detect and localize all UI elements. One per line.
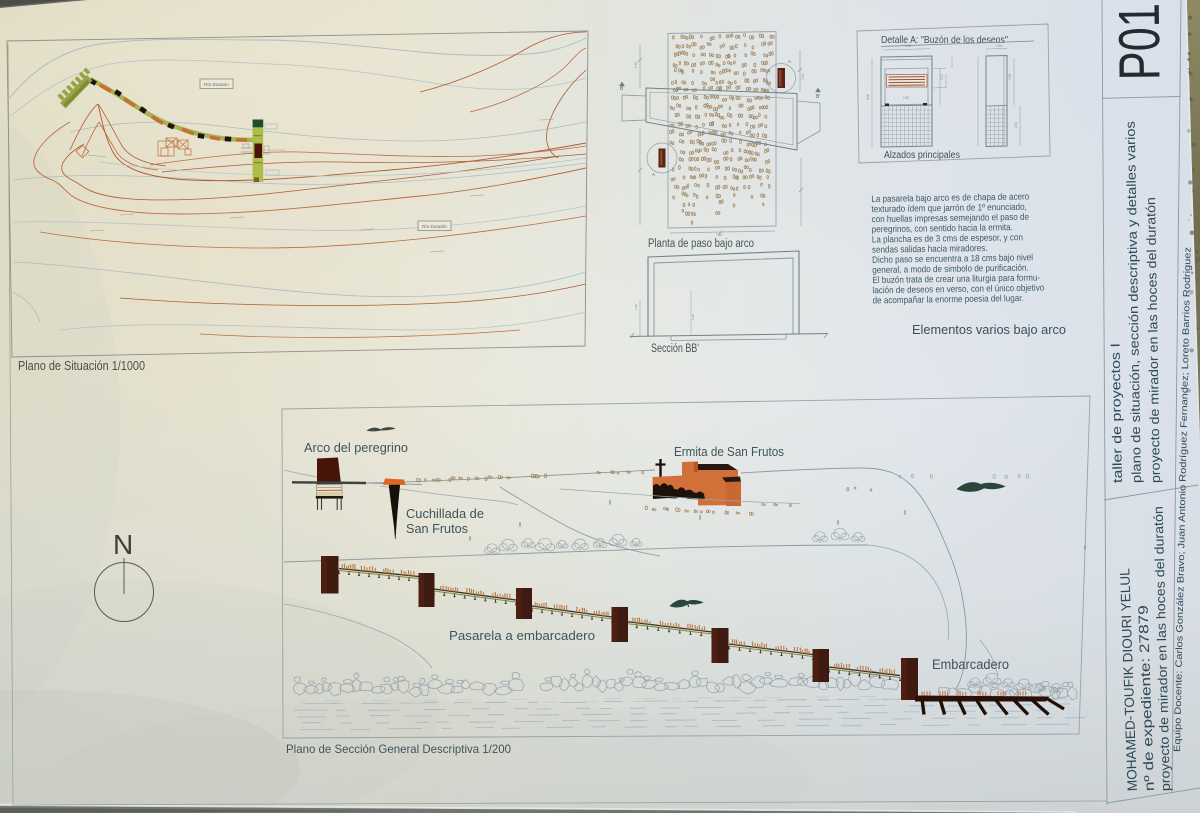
svg-text:N: N (113, 529, 133, 560)
svg-text:Plano de Situación 1/1000: Plano de Situación 1/1000 (18, 359, 145, 373)
svg-text:2.17: 2.17 (940, 74, 944, 80)
svg-text:3.36: 3.36 (905, 44, 911, 48)
svg-text:1.95: 1.95 (634, 304, 638, 310)
svg-text:Planta de paso bajo arco: Planta de paso bajo arco (648, 238, 754, 250)
svg-text:1.50: 1.50 (996, 44, 1002, 48)
svg-text:Embarcadero: Embarcadero (932, 657, 1009, 672)
svg-text:Río Duratón: Río Duratón (204, 82, 229, 87)
svg-text:0.18: 0.18 (691, 314, 695, 320)
svg-text:A: A (788, 59, 791, 64)
svg-text:Pasarela a embarcadero: Pasarela a embarcadero (449, 628, 595, 643)
svg-text:7.04: 7.04 (801, 74, 805, 80)
svg-text:Río Duratón: Río Duratón (422, 224, 447, 229)
svg-text:2.80: 2.80 (903, 96, 910, 100)
svg-text:6.00: 6.00 (866, 94, 870, 100)
svg-text:Sección BB': Sección BB' (651, 343, 699, 355)
svg-text:taller de proyectos I: taller de proyectos I (1108, 343, 1125, 483)
svg-text:2.44: 2.44 (1014, 122, 1018, 128)
svg-text:Plano de Sección General Descr: Plano de Sección General Descriptiva 1/2… (286, 742, 511, 756)
svg-text:A: A (652, 172, 655, 177)
svg-text:B': B' (816, 94, 820, 100)
svg-text:P01: P01 (1107, 3, 1173, 81)
svg-text:7.20: 7.20 (716, 233, 722, 237)
svg-text:San Frutos: San Frutos (406, 522, 468, 536)
svg-text:Ermita de San Frutos: Ermita de San Frutos (674, 445, 784, 459)
svg-text:Arco del peregrino: Arco del peregrino (304, 441, 408, 455)
svg-text:Cuchillada de: Cuchillada de (406, 507, 484, 521)
svg-text:Alzados principales: Alzados principales (884, 150, 960, 161)
svg-text:5.30: 5.30 (634, 62, 638, 68)
svg-text:3.36: 3.36 (1008, 74, 1012, 80)
svg-text:Elementos varios bajo arco: Elementos varios bajo arco (912, 322, 1066, 337)
